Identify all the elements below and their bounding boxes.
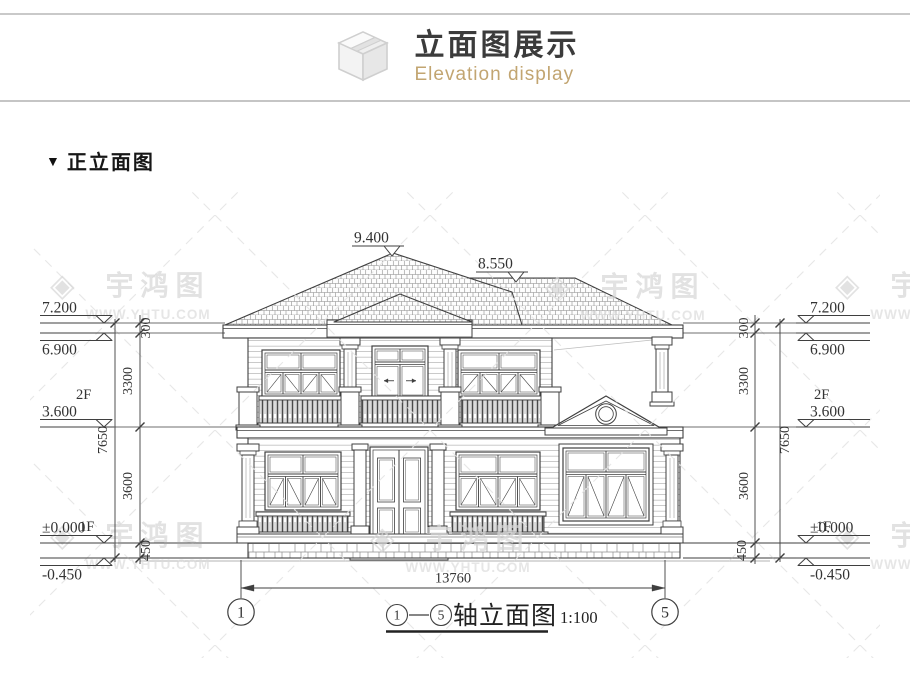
section-title: 正立面图: [67, 146, 155, 175]
elevation-drawing: ◈宇鸿图WWW.YHTU.COM◈宇鸿图WWW.YHTU.COM◈宇鸿图WWW.…: [0, 0, 910, 673]
floor-label: 1F: [79, 519, 94, 535]
vertical-dim: 3600: [737, 472, 752, 500]
watermark-brand: 宇鸿图: [105, 270, 210, 301]
elevation-value: 7.200: [42, 300, 77, 317]
vertical-dim: 3300: [121, 367, 136, 395]
roof-elevation-value: 8.550: [478, 256, 513, 273]
floor-label: 2F: [76, 387, 91, 403]
elevation-value: 3.600: [810, 404, 845, 421]
elevation-value: 3.600: [42, 404, 77, 421]
floor-label: 2F: [814, 387, 829, 403]
floor-label: 1F: [816, 519, 831, 535]
watermark-brand: 宇鸿图: [890, 270, 910, 301]
overall-height-dim: 7650: [96, 426, 111, 454]
axis-bubble: 5: [661, 605, 669, 622]
vertical-dim: 300: [139, 318, 154, 339]
overall-width-dim: 13760: [435, 571, 471, 587]
title-axis-bubble: 1: [394, 608, 401, 623]
vertical-dim: 300: [737, 318, 752, 339]
elevation-value: 7.200: [810, 300, 845, 317]
watermark-url: WWW.YHTU.COM: [870, 307, 910, 322]
axis-bubble: 1: [237, 605, 245, 622]
vertical-dim: 450: [735, 540, 750, 561]
watermark-logo: ◈: [50, 267, 75, 303]
watermark-logo: ◈: [835, 267, 860, 303]
vertical-dim: 3600: [121, 472, 136, 500]
watermark-brand: 宇鸿图: [105, 520, 210, 551]
elevation-value: -0.450: [810, 567, 850, 584]
roof-elevation-value: 9.400: [354, 230, 389, 247]
section-label: ▼ 正立面图: [46, 146, 155, 175]
overall-height-dim: 7650: [778, 426, 793, 454]
vertical-dim: 3300: [737, 367, 752, 395]
drawing-title: 轴立面图: [453, 602, 557, 630]
watermark-brand: 宇鸿图: [600, 271, 705, 302]
elevation-value: -0.450: [42, 567, 82, 584]
elevation-value: 6.900: [810, 342, 845, 359]
watermark-brand: 宇鸿图: [890, 520, 910, 551]
watermark-logo: ◈: [370, 520, 395, 556]
watermark-url: WWW.YHTU.COM: [870, 557, 910, 572]
watermark-logo: ◈: [545, 268, 570, 304]
elevation-value: 6.900: [42, 342, 77, 359]
triangle-marker-icon: ▼: [46, 153, 60, 169]
watermark-url: WWW.YHTU.COM: [580, 308, 705, 323]
vertical-dim: 450: [139, 540, 154, 561]
title-axis-bubble: 5: [438, 608, 445, 623]
watermark-brand: 宇鸿图: [425, 523, 530, 554]
drawing-scale: 1:100: [560, 608, 598, 627]
page: 立面图展示 Elevation display ▼ 正立面图 ◈宇鸿图WWW.Y…: [0, 0, 910, 673]
